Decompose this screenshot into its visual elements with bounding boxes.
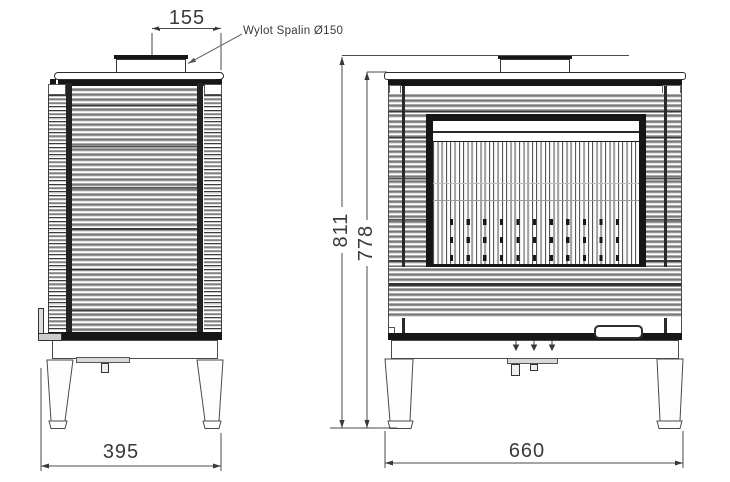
- side-foot-front: [49, 421, 67, 429]
- flue-outlet-label: Wylot Spalin Ø150: [243, 25, 343, 37]
- dimension-155: [152, 26, 221, 70]
- dim-label-155: 155: [159, 8, 215, 28]
- dim-label-660: 660: [497, 441, 557, 461]
- front-leg-right: [657, 359, 683, 421]
- dim-label-395: 395: [91, 442, 151, 462]
- front-foot-right: [657, 421, 682, 429]
- air-control-marks: [514, 340, 555, 350]
- dim-label-778: 778: [356, 220, 376, 266]
- side-leg-rear: [197, 360, 223, 421]
- front-leg-left: [385, 359, 413, 421]
- side-leg-front: [47, 360, 73, 421]
- flue-leader-line: [188, 34, 242, 64]
- dimension-811: [339, 56, 629, 429]
- dim-label-811: 811: [331, 207, 351, 253]
- side-foot-rear: [203, 421, 221, 429]
- technical-drawing: 155 Wylot Spalin Ø150 811 778 395 660: [0, 0, 730, 482]
- legs: [47, 359, 683, 429]
- front-foot-left: [388, 421, 413, 429]
